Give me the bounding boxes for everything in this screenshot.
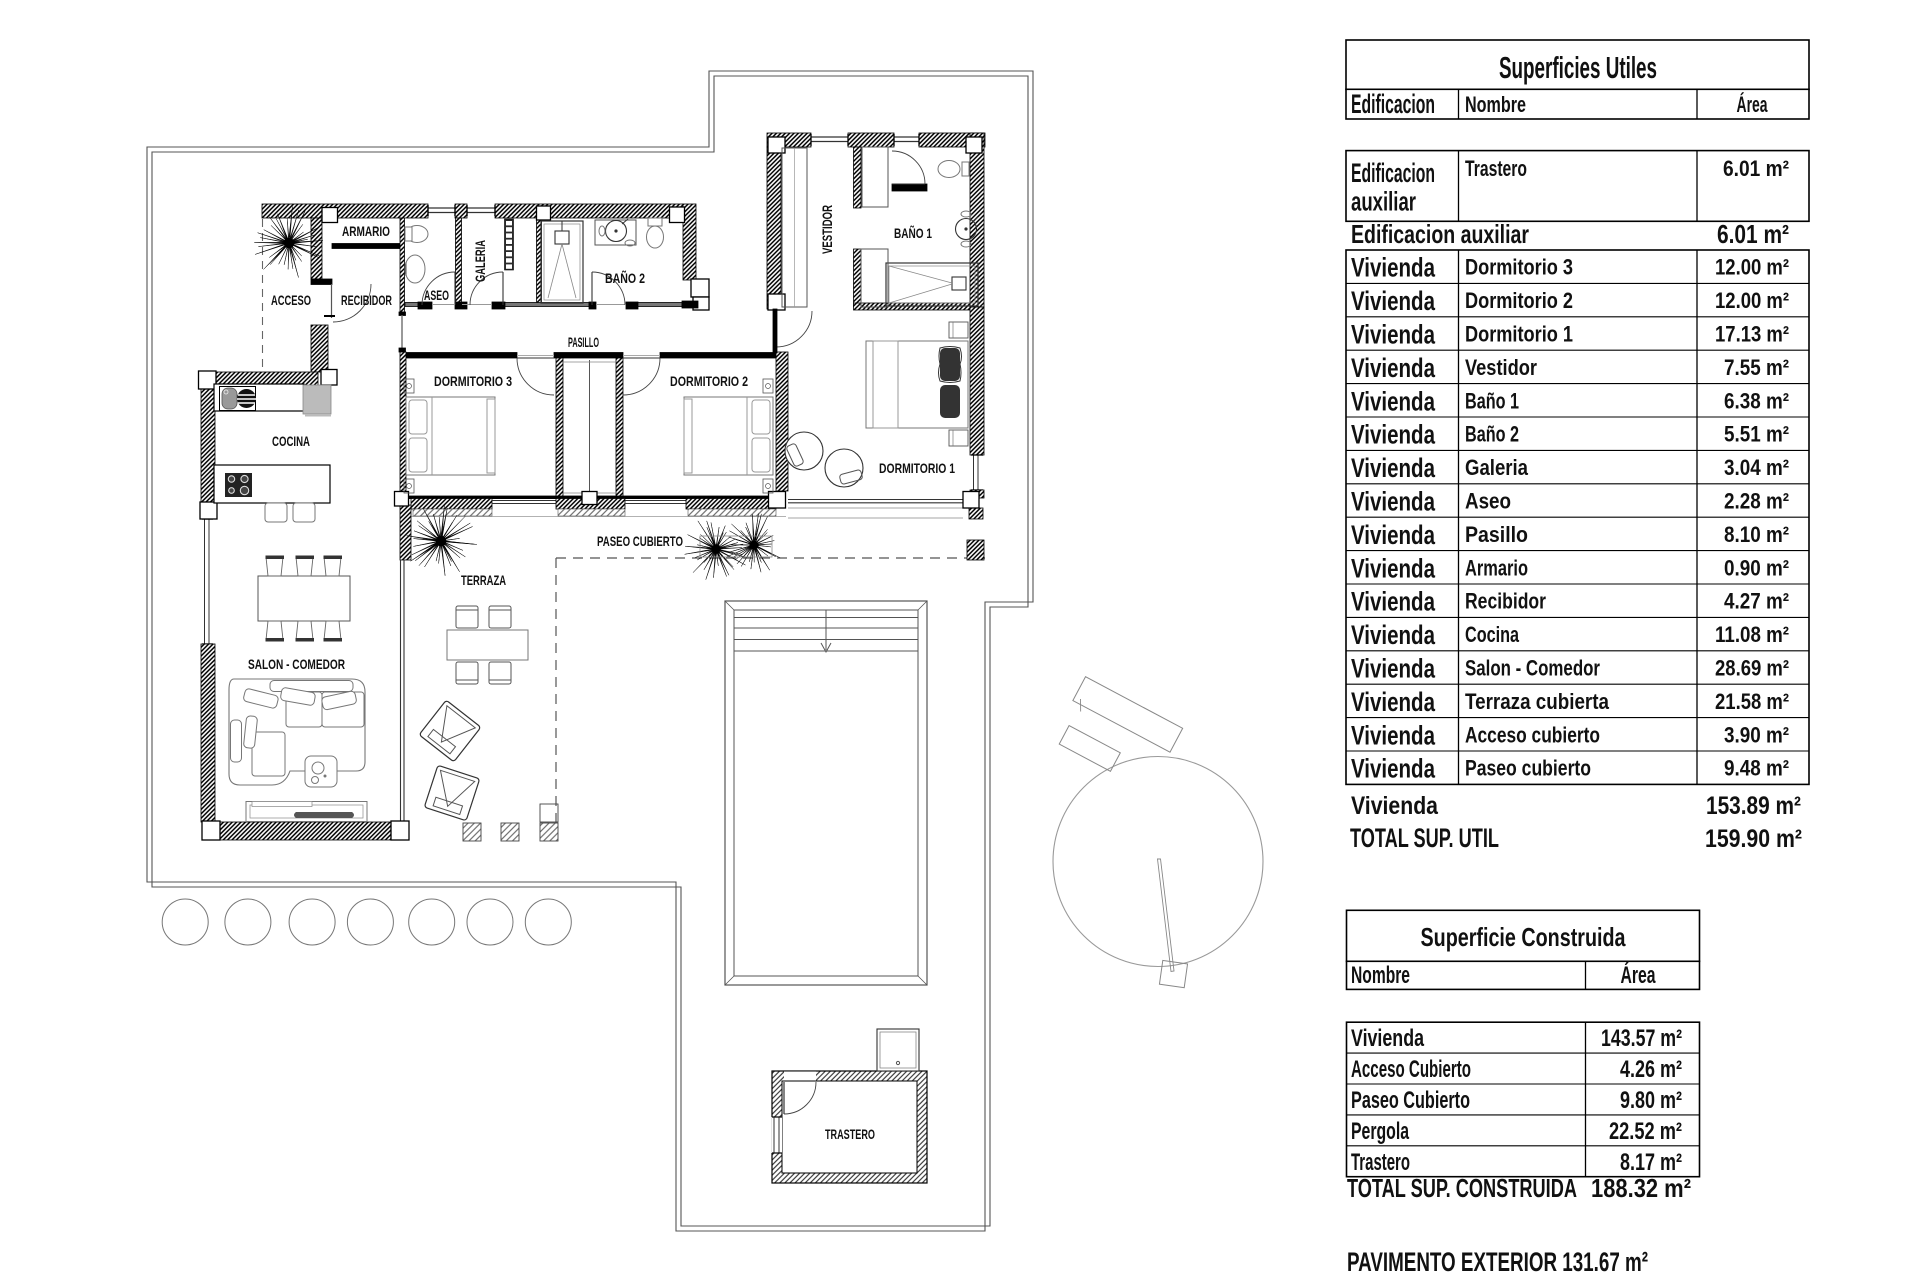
svg-text:Recibidor: Recibidor bbox=[1465, 589, 1546, 614]
svg-text:Acceso cubierto: Acceso cubierto bbox=[1465, 722, 1600, 747]
svg-text:Vivienda: Vivienda bbox=[1351, 420, 1436, 450]
svg-text:Vestidor: Vestidor bbox=[1465, 355, 1537, 380]
svg-text:auxiliar: auxiliar bbox=[1351, 187, 1416, 217]
svg-text:Vivienda: Vivienda bbox=[1351, 687, 1436, 717]
svg-text:DORMITORIO 3: DORMITORIO 3 bbox=[434, 373, 512, 389]
svg-text:28.69 m²: 28.69 m² bbox=[1715, 656, 1789, 681]
svg-text:Vivienda: Vivienda bbox=[1351, 720, 1436, 750]
svg-text:3.90 m²: 3.90 m² bbox=[1724, 722, 1789, 747]
svg-text:Edificacion auxiliar: Edificacion auxiliar bbox=[1351, 219, 1529, 249]
svg-text:Vivienda: Vivienda bbox=[1351, 587, 1436, 617]
svg-text:GALERIA: GALERIA bbox=[472, 240, 488, 282]
svg-text:Vivienda: Vivienda bbox=[1351, 792, 1439, 820]
svg-text:Cocina: Cocina bbox=[1465, 622, 1520, 647]
svg-text:Edificacion: Edificacion bbox=[1351, 158, 1435, 188]
svg-text:Área: Área bbox=[1621, 961, 1656, 989]
svg-text:Vivienda: Vivienda bbox=[1351, 487, 1436, 517]
svg-text:4.26 m²: 4.26 m² bbox=[1620, 1056, 1682, 1083]
svg-text:159.90 m²: 159.90 m² bbox=[1705, 825, 1802, 853]
svg-text:TOTAL SUP. UTIL: TOTAL SUP. UTIL bbox=[1350, 823, 1499, 853]
svg-text:Vivienda: Vivienda bbox=[1351, 320, 1436, 350]
svg-text:4.27 m²: 4.27 m² bbox=[1724, 589, 1789, 614]
svg-text:Dormitorio 2: Dormitorio 2 bbox=[1465, 288, 1573, 313]
svg-text:Edificacion: Edificacion bbox=[1351, 89, 1435, 119]
svg-text:ARMARIO: ARMARIO bbox=[342, 223, 390, 239]
svg-text:TOTAL SUP. CONSTRUIDA: TOTAL SUP. CONSTRUIDA bbox=[1347, 1173, 1577, 1203]
svg-text:22.52 m²: 22.52 m² bbox=[1609, 1118, 1682, 1145]
svg-text:143.57 m²: 143.57 m² bbox=[1601, 1025, 1682, 1052]
svg-text:Superficie Construida: Superficie Construida bbox=[1421, 922, 1626, 952]
svg-text:Baño 2: Baño 2 bbox=[1465, 422, 1519, 447]
svg-text:12.00 m²: 12.00 m² bbox=[1715, 288, 1789, 313]
svg-text:Nombre: Nombre bbox=[1465, 92, 1526, 117]
svg-text:21.58 m²: 21.58 m² bbox=[1715, 689, 1789, 714]
svg-text:PASEO CUBIERTO: PASEO CUBIERTO bbox=[597, 533, 683, 549]
svg-text:6.01 m²: 6.01 m² bbox=[1723, 156, 1789, 181]
svg-text:Pasillo: Pasillo bbox=[1465, 522, 1528, 547]
svg-text:0.90 m²: 0.90 m² bbox=[1724, 555, 1789, 580]
svg-text:8.10 m²: 8.10 m² bbox=[1724, 522, 1789, 547]
svg-text:8.17 m²: 8.17 m² bbox=[1620, 1149, 1682, 1176]
svg-text:188.32 m²: 188.32 m² bbox=[1591, 1173, 1691, 1203]
svg-text:PAVIMENTO EXTERIOR 131.67 m²: PAVIMENTO EXTERIOR 131.67 m² bbox=[1347, 1247, 1648, 1277]
svg-text:Vivienda: Vivienda bbox=[1351, 553, 1436, 583]
svg-text:ASEO: ASEO bbox=[424, 287, 449, 303]
svg-text:Trastero: Trastero bbox=[1465, 156, 1527, 181]
svg-text:12.00 m²: 12.00 m² bbox=[1715, 255, 1789, 280]
svg-text:11.08 m²: 11.08 m² bbox=[1715, 622, 1789, 647]
svg-text:TRASTERO: TRASTERO bbox=[825, 1126, 875, 1142]
svg-text:Vivienda: Vivienda bbox=[1351, 453, 1436, 483]
svg-text:VESTIDOR: VESTIDOR bbox=[819, 205, 835, 254]
svg-text:Nombre: Nombre bbox=[1351, 962, 1410, 989]
svg-text:Vivienda: Vivienda bbox=[1351, 520, 1436, 550]
svg-text:153.89 m²: 153.89 m² bbox=[1706, 792, 1801, 820]
svg-text:Área: Área bbox=[1737, 92, 1768, 117]
svg-text:Vivienda: Vivienda bbox=[1351, 253, 1436, 283]
svg-text:Superficies Utiles: Superficies Utiles bbox=[1499, 50, 1657, 85]
svg-text:Aseo: Aseo bbox=[1465, 489, 1511, 514]
svg-text:Paseo Cubierto: Paseo Cubierto bbox=[1351, 1087, 1470, 1114]
svg-text:BAÑO 2: BAÑO 2 bbox=[605, 269, 645, 286]
svg-text:TERRAZA: TERRAZA bbox=[461, 572, 506, 588]
svg-text:9.48 m²: 9.48 m² bbox=[1724, 756, 1789, 781]
svg-text:COCINA: COCINA bbox=[272, 433, 310, 449]
svg-text:Paseo cubierto: Paseo cubierto bbox=[1465, 756, 1591, 781]
svg-text:Baño 1: Baño 1 bbox=[1465, 388, 1519, 413]
svg-text:RECIBIDOR: RECIBIDOR bbox=[341, 292, 392, 308]
svg-text:DORMITORIO 1: DORMITORIO 1 bbox=[879, 460, 955, 476]
svg-text:6.38 m²: 6.38 m² bbox=[1724, 388, 1789, 413]
svg-text:9.80 m²: 9.80 m² bbox=[1620, 1087, 1682, 1114]
svg-text:7.55 m²: 7.55 m² bbox=[1724, 355, 1789, 380]
svg-text:Salon - Comedor: Salon - Comedor bbox=[1465, 656, 1600, 681]
svg-text:Armario: Armario bbox=[1465, 555, 1528, 580]
svg-text:17.13 m²: 17.13 m² bbox=[1715, 322, 1789, 347]
svg-text:Vivienda: Vivienda bbox=[1351, 620, 1436, 650]
svg-text:Terraza cubierta: Terraza cubierta bbox=[1465, 689, 1610, 714]
svg-text:BAÑO 1: BAÑO 1 bbox=[894, 224, 932, 241]
svg-text:Vivienda: Vivienda bbox=[1351, 654, 1436, 684]
svg-text:DORMITORIO 2: DORMITORIO 2 bbox=[670, 373, 748, 389]
svg-text:Vivienda: Vivienda bbox=[1351, 286, 1436, 316]
svg-text:ACCESO: ACCESO bbox=[271, 292, 311, 308]
svg-text:2.28 m²: 2.28 m² bbox=[1724, 489, 1789, 514]
svg-text:SALON - COMEDOR: SALON - COMEDOR bbox=[248, 656, 345, 672]
svg-text:Vivienda: Vivienda bbox=[1351, 353, 1436, 383]
svg-text:Vivienda: Vivienda bbox=[1351, 386, 1436, 416]
svg-text:Acceso Cubierto: Acceso Cubierto bbox=[1351, 1056, 1471, 1083]
svg-text:Pergola: Pergola bbox=[1351, 1118, 1409, 1145]
svg-text:Vivienda: Vivienda bbox=[1351, 1025, 1424, 1052]
svg-text:Galeria: Galeria bbox=[1465, 455, 1529, 480]
svg-text:Vivienda: Vivienda bbox=[1351, 754, 1436, 784]
svg-text:3.04 m²: 3.04 m² bbox=[1724, 455, 1789, 480]
svg-text:PASILLO: PASILLO bbox=[568, 334, 599, 350]
svg-text:Trastero: Trastero bbox=[1351, 1149, 1410, 1176]
svg-text:Dormitorio 3: Dormitorio 3 bbox=[1465, 255, 1573, 280]
svg-text:5.51 m²: 5.51 m² bbox=[1724, 422, 1789, 447]
svg-text:6.01 m²: 6.01 m² bbox=[1717, 219, 1789, 249]
svg-text:Dormitorio 1: Dormitorio 1 bbox=[1465, 322, 1573, 347]
